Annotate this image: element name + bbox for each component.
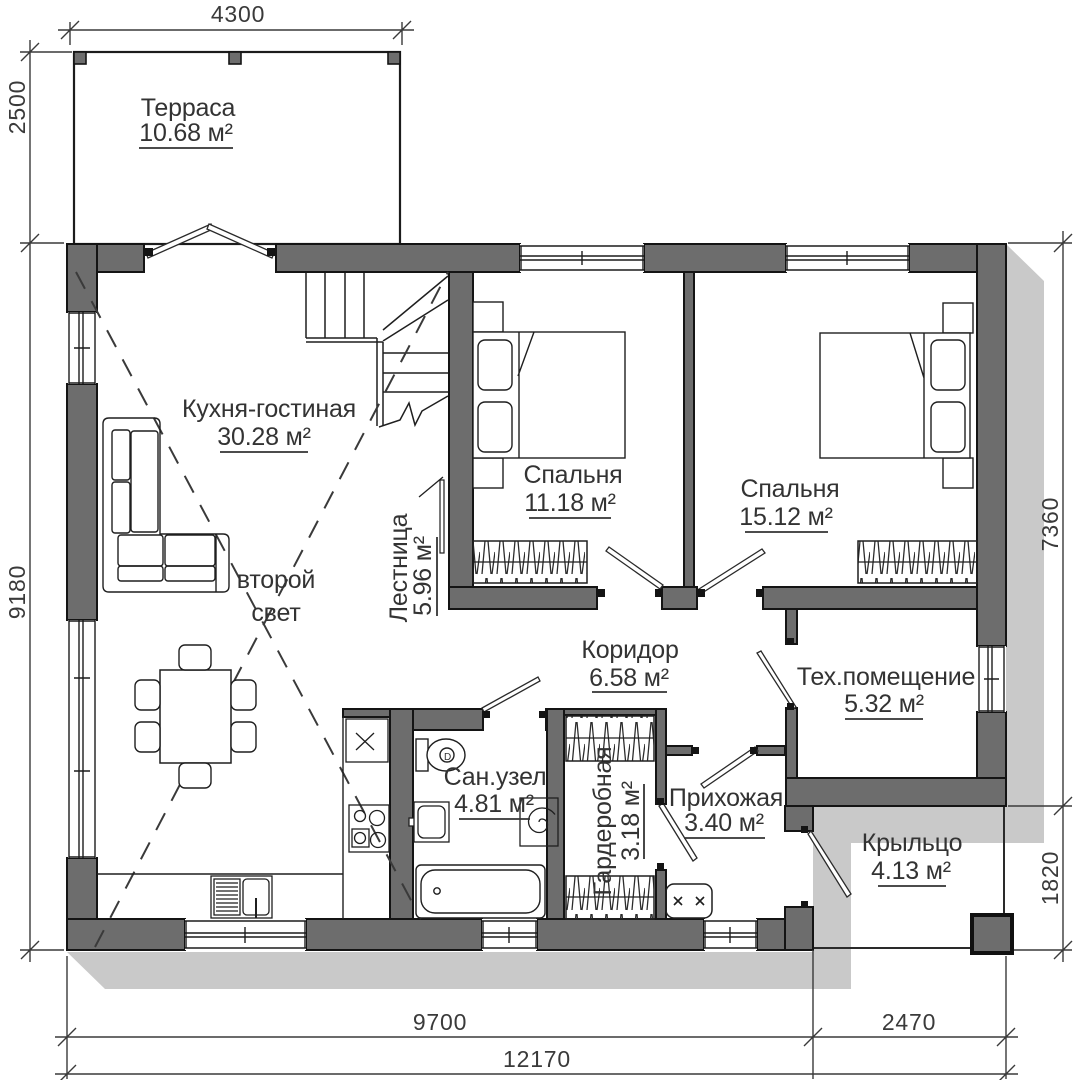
svg-text:4.13 м²: 4.13 м² xyxy=(871,857,951,885)
svg-text:7360: 7360 xyxy=(1037,497,1063,551)
svg-text:Кухня-гостиная: Кухня-гостиная xyxy=(182,395,356,423)
svg-text:D: D xyxy=(444,752,451,763)
svg-text:5.32 м²: 5.32 м² xyxy=(844,690,924,718)
svg-text:6.58 м²: 6.58 м² xyxy=(589,664,669,692)
svg-text:Прихожая: Прихожая xyxy=(669,784,783,812)
svg-text:Спальня: Спальня xyxy=(740,475,839,503)
svg-text:Терраса: Терраса xyxy=(141,94,236,122)
svg-text:9180: 9180 xyxy=(4,565,30,619)
svg-text:30.28 м²: 30.28 м² xyxy=(217,423,310,451)
svg-text:4.81 м²: 4.81 м² xyxy=(454,790,534,818)
svg-text:2500: 2500 xyxy=(4,80,30,134)
svg-text:Спальня: Спальня xyxy=(523,461,622,489)
svg-text:10.68 м²: 10.68 м² xyxy=(139,119,232,147)
svg-text:12170: 12170 xyxy=(503,1046,571,1072)
svg-text:3.40 м²: 3.40 м² xyxy=(684,809,764,837)
svg-text:Крыльцо: Крыльцо xyxy=(862,829,963,857)
svg-text:Тех.помещение: Тех.помещение xyxy=(797,663,975,691)
svg-text:5.96 м²: 5.96 м² xyxy=(409,536,437,616)
svg-text:свет: свет xyxy=(251,599,301,627)
svg-text:2470: 2470 xyxy=(882,1009,936,1035)
svg-text:4300: 4300 xyxy=(211,1,265,27)
svg-text:1820: 1820 xyxy=(1037,851,1063,905)
svg-text:Коридор: Коридор xyxy=(581,636,678,664)
svg-text:второй: второй xyxy=(237,566,315,594)
svg-text:Сан.узел: Сан.узел xyxy=(444,763,547,791)
svg-text:15.12 м²: 15.12 м² xyxy=(739,503,832,531)
svg-text:3.18 м²: 3.18 м² xyxy=(617,781,645,861)
svg-text:11.18 м²: 11.18 м² xyxy=(524,489,616,517)
svg-text:Гардеробная: Гардеробная xyxy=(589,746,617,895)
svg-text:9700: 9700 xyxy=(413,1009,467,1035)
